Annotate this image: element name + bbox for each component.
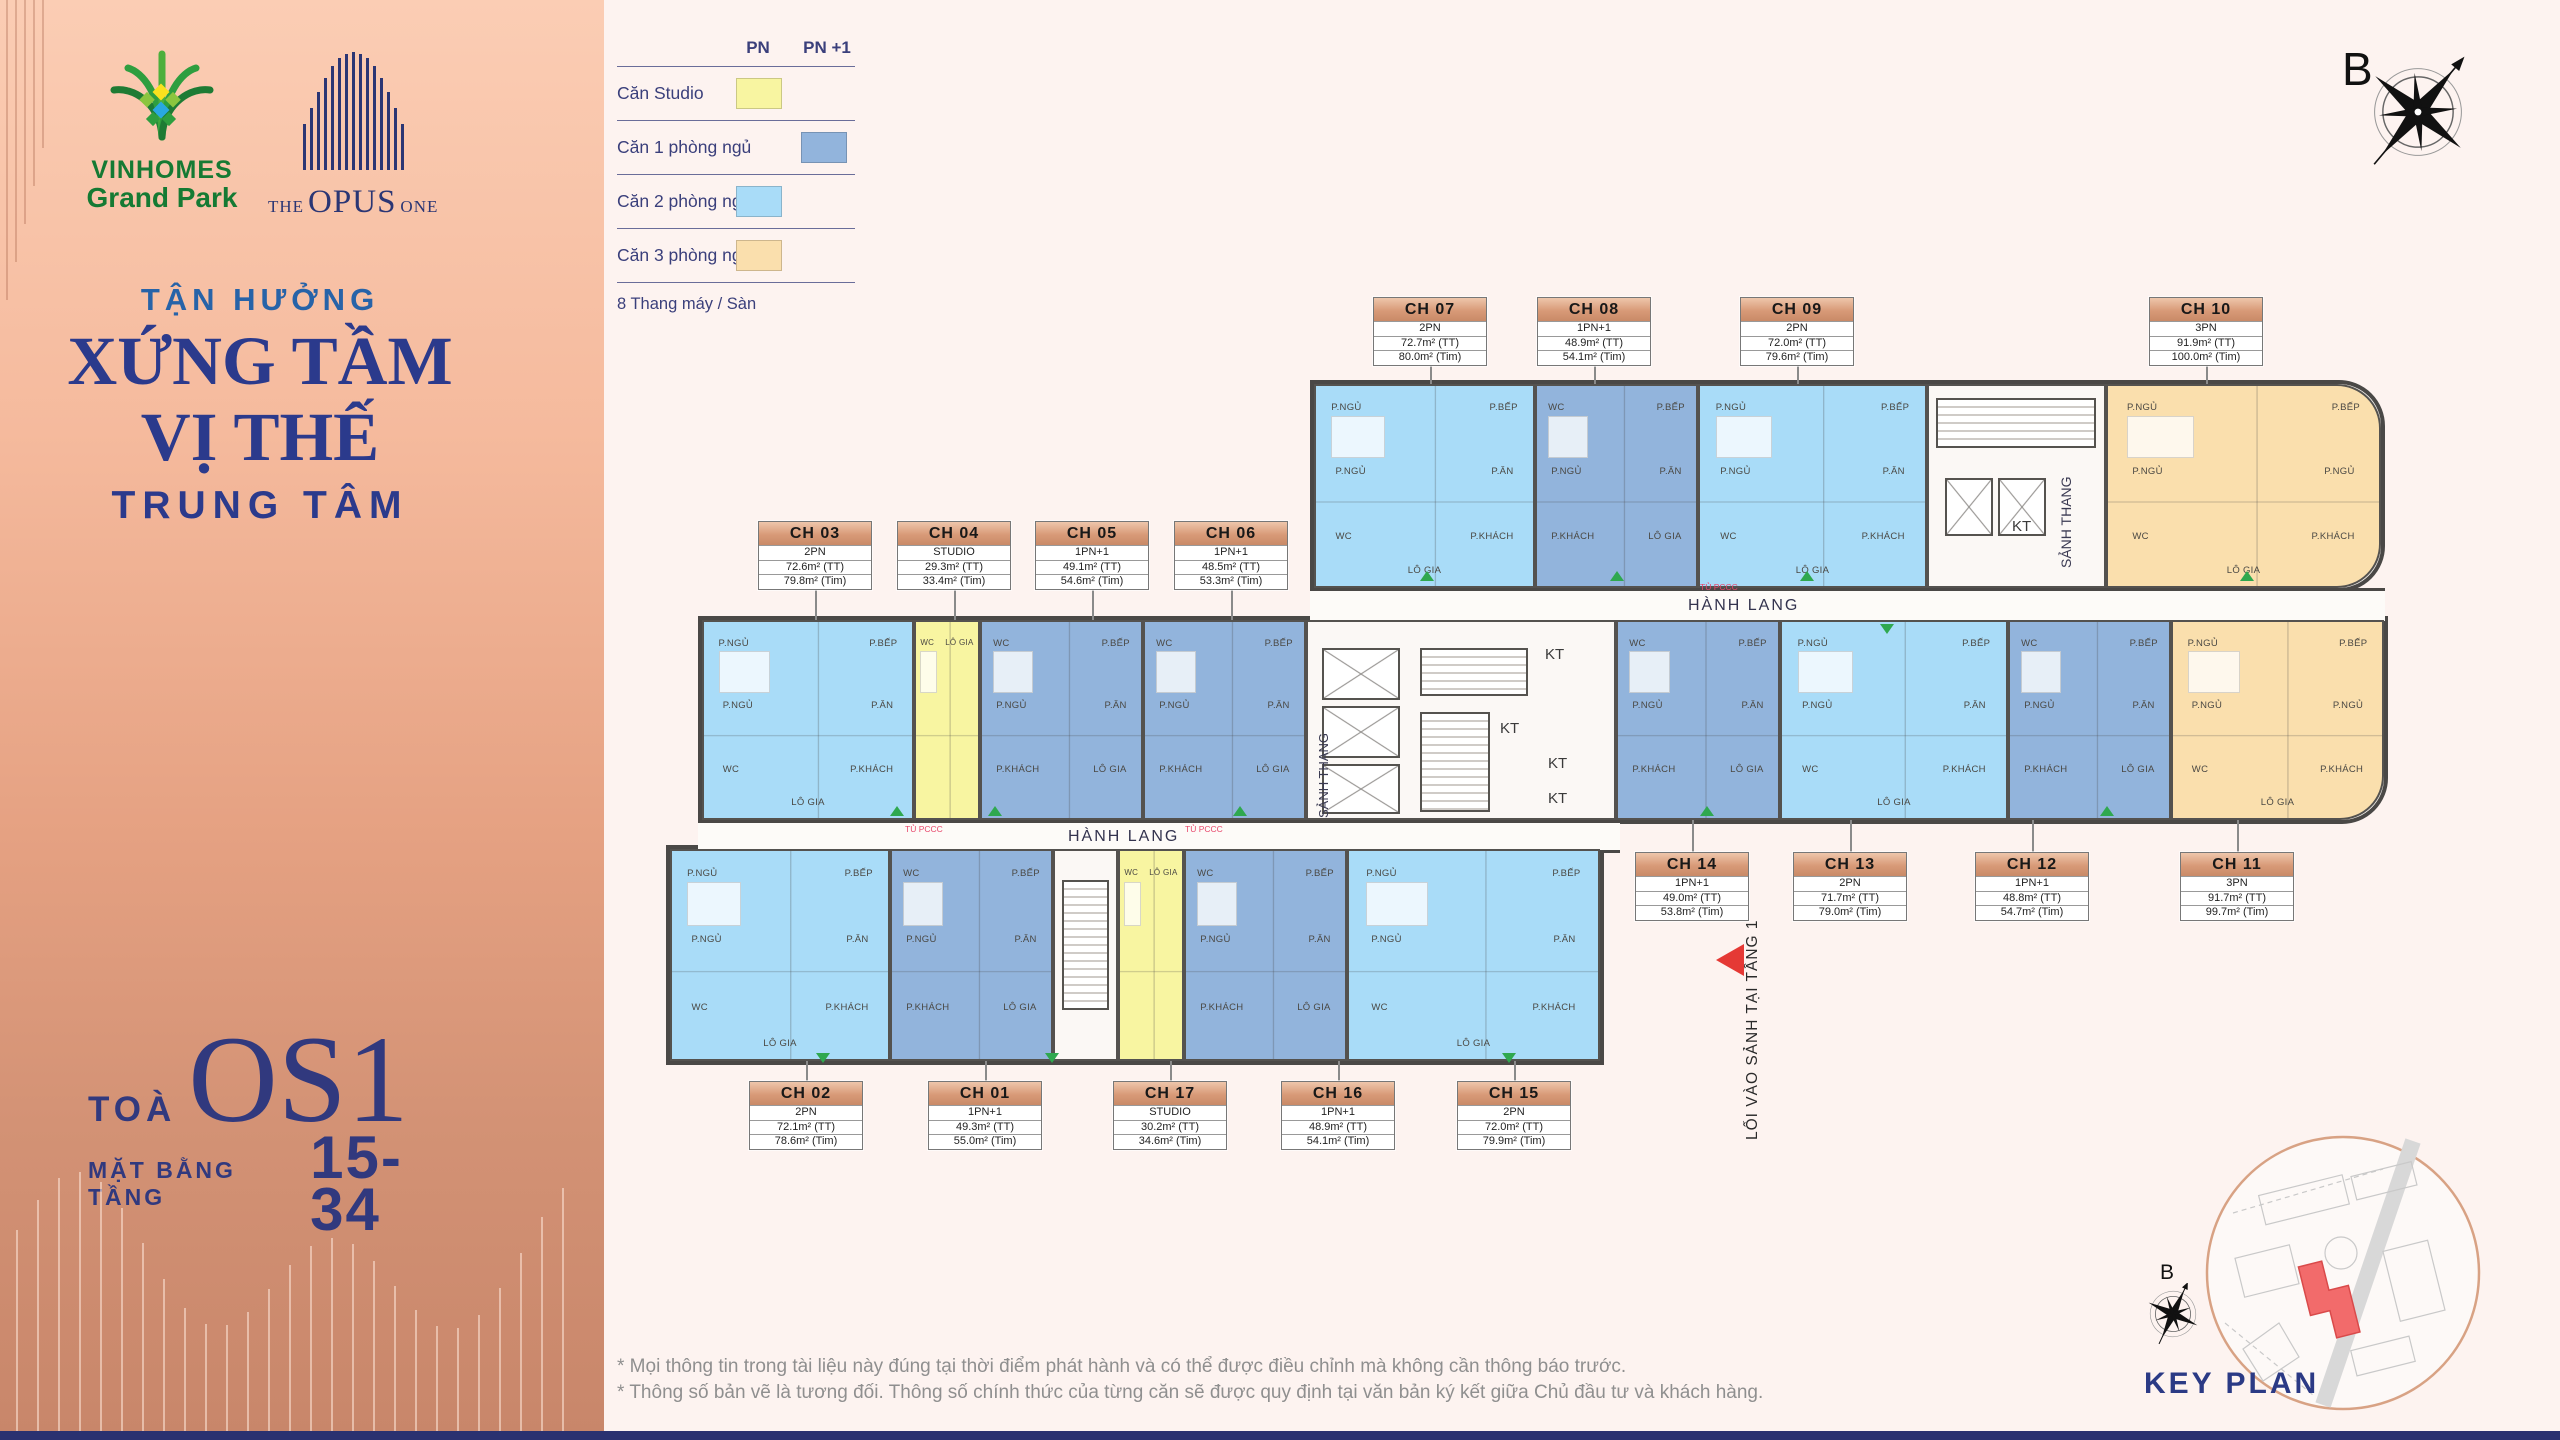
key-plan-north-letter: B <box>2160 1261 2174 1285</box>
unit-area-tim: 54.7m² (Tim) <box>1976 905 2088 920</box>
unit-callout-ch12: CH 121PN+148.8m² (TT)54.7m² (Tim) <box>1975 852 2089 921</box>
unit-type: 1PN+1 <box>1036 545 1148 560</box>
room-label: P.NGỦ <box>1798 638 1828 649</box>
unit-type: 1PN+1 <box>1636 876 1748 891</box>
room-label: P.NGỦ <box>1200 934 1230 945</box>
room-label: P.NGỦ <box>1720 466 1750 477</box>
unit-area-tt: 72.7m² (TT) <box>1374 336 1486 351</box>
unit-ch07: P.NGỦP.BẾPP.NGỦP.ĂNWCP.KHÁCHLÔ GIA <box>1314 384 1535 588</box>
room-label: LÔ GIA <box>1149 868 1177 877</box>
unit-number: CH 15 <box>1458 1082 1570 1105</box>
unit-area-tim: 34.6m² (Tim) <box>1114 1134 1226 1149</box>
room-label: P.BẾP <box>1739 638 1767 649</box>
corridor-top-label: HÀNH LANG <box>1688 597 1799 615</box>
unit-leader-line <box>2237 820 2239 852</box>
vent-triangle-icon <box>1800 571 1814 581</box>
room-label: WC <box>1156 638 1172 649</box>
unit-area-tt: 72.1m² (TT) <box>750 1120 862 1135</box>
staircase-icon <box>1062 880 1109 1010</box>
vent-triangle-icon <box>1700 806 1714 816</box>
unit-number: CH 12 <box>1976 853 2088 876</box>
corridor-top <box>1310 588 2385 624</box>
unit-type: 1PN+1 <box>1538 321 1650 336</box>
kt-label: KT <box>1548 755 1567 772</box>
unit-area-tt: 48.9m² (TT) <box>1282 1120 1394 1135</box>
unit-type: STUDIO <box>1114 1105 1226 1120</box>
room-label: WC <box>1629 638 1645 649</box>
staircase-icon <box>1936 398 2096 448</box>
room-label: WC <box>723 764 739 775</box>
room-label: P.KHÁCH <box>1200 1002 1243 1013</box>
room-label: P.NGỦ <box>1159 700 1189 711</box>
room-label: P.NGỦ <box>1366 868 1396 879</box>
unit-number: CH 13 <box>1794 853 1906 876</box>
room-label: LÔ GIA <box>2121 764 2154 775</box>
room-label: P.BẾP <box>1962 638 1990 649</box>
room-label: WC <box>2021 638 2037 649</box>
unit-ch14: WCP.BẾPP.NGỦP.ĂNP.KHÁCHLÔ GIA <box>1616 620 1780 820</box>
unit-ch09: P.NGỦP.BẾPP.NGỦP.ĂNWCP.KHÁCHLÔ GIA <box>1698 384 1927 588</box>
unit-leader-line <box>1231 586 1233 620</box>
unit-callout-ch07: CH 072PN72.7m² (TT)80.0m² (Tim) <box>1373 297 1487 366</box>
vent-triangle-icon <box>988 806 1002 816</box>
room-label: WC <box>1371 1002 1387 1013</box>
disclaimer-line2: * Thông số bản vẽ là tương đối. Thông số… <box>617 1380 1763 1406</box>
unit-callout-ch06: CH 061PN+148.5m² (TT)53.3m² (Tim) <box>1174 521 1288 590</box>
unit-area-tim: 79.8m² (Tim) <box>759 574 871 589</box>
unit-ch12: WCP.BẾPP.NGỦP.ĂNP.KHÁCHLÔ GIA <box>2008 620 2171 820</box>
unit-type: 1PN+1 <box>929 1105 1041 1120</box>
room-label: WC <box>1124 868 1138 877</box>
room-label: WC <box>1720 531 1736 542</box>
unit-area-tim: 54.6m² (Tim) <box>1036 574 1148 589</box>
unit-callout-ch16: CH 161PN+148.9m² (TT)54.1m² (Tim) <box>1281 1081 1395 1150</box>
room-label: P.KHÁCH <box>1862 531 1905 542</box>
room-label: P.NGỦ <box>2024 700 2054 711</box>
vent-triangle-icon <box>1502 1053 1516 1063</box>
unit-area-tim: 100.0m² (Tim) <box>2150 350 2262 365</box>
room-label: P.ĂN <box>1964 700 1986 711</box>
unit-type: 2PN <box>759 545 871 560</box>
unit-area-tt: 49.1m² (TT) <box>1036 560 1148 575</box>
room-label: P.NGỦ <box>1802 700 1832 711</box>
unit-number: CH 09 <box>1741 298 1853 321</box>
lobby-label-2: SẢNH THANG <box>1316 700 1331 818</box>
room-label: WC <box>2192 764 2208 775</box>
room-label: P.NGỦ <box>1331 402 1361 413</box>
room-label: P.NGỦ <box>719 638 749 649</box>
unit-callout-ch05: CH 051PN+149.1m² (TT)54.6m² (Tim) <box>1035 521 1149 590</box>
room-label: P.BẾP <box>1490 402 1518 413</box>
unit-callout-ch03: CH 032PN72.6m² (TT)79.8m² (Tim) <box>758 521 872 590</box>
unit-leader-line <box>815 586 817 620</box>
room-label: P.NGỦ <box>2192 700 2222 711</box>
room-label: P.BẾP <box>2339 638 2367 649</box>
unit-area-tim: 33.4m² (Tim) <box>898 574 1010 589</box>
room-label: P.ĂN <box>1105 700 1127 711</box>
unit-area-tt: 72.0m² (TT) <box>1741 336 1853 351</box>
unit-callout-ch02: CH 022PN72.1m² (TT)78.6m² (Tim) <box>749 1081 863 1150</box>
room-label: P.NGỦ <box>1336 466 1366 477</box>
unit-number: CH 02 <box>750 1082 862 1105</box>
unit-area-tt: 91.7m² (TT) <box>2181 891 2293 906</box>
room-label: P.KHÁCH <box>1943 764 1986 775</box>
room-label: LÔ GIA <box>1648 531 1681 542</box>
room-label: P.NGỦ <box>1632 700 1662 711</box>
room-label: WC <box>993 638 1009 649</box>
unit-type: 3PN <box>2150 321 2262 336</box>
room-label: P.ĂN <box>846 934 868 945</box>
unit-area-tim: 54.1m² (Tim) <box>1282 1134 1394 1149</box>
room-label: LÔ GIA <box>1457 1038 1490 1049</box>
unit-type: 1PN+1 <box>1282 1105 1394 1120</box>
unit-number: CH 03 <box>759 522 871 545</box>
unit-type: 2PN <box>1374 321 1486 336</box>
disclaimer-line1: * Mọi thông tin trong tài liệu này đúng … <box>617 1354 1763 1380</box>
room-label: P.NGỦ <box>2324 466 2354 477</box>
unit-leader-line <box>2032 820 2034 852</box>
unit-type: 1PN+1 <box>1175 545 1287 560</box>
elevator-icon <box>1945 478 1993 536</box>
unit-area-tt: 72.0m² (TT) <box>1458 1120 1570 1135</box>
room-label: P.BẾP <box>2332 402 2360 413</box>
room-label: P.ĂN <box>1015 934 1037 945</box>
room-label: P.ĂN <box>1660 466 1682 477</box>
unit-leader-line <box>1850 820 1852 852</box>
vent-triangle-icon <box>2240 571 2254 581</box>
room-label: P.KHÁCH <box>1532 1002 1575 1013</box>
room-label: P.KHÁCH <box>825 1002 868 1013</box>
room-label: WC <box>1197 868 1213 879</box>
room-label: P.BẾP <box>1881 402 1909 413</box>
room-label: P.BẾP <box>1657 402 1685 413</box>
vent-triangle-icon <box>1610 571 1624 581</box>
room-label: P.BẾP <box>1552 868 1580 879</box>
room-label: WC <box>1336 531 1352 542</box>
unit-area-tt: 48.9m² (TT) <box>1538 336 1650 351</box>
room-label: P.BẾP <box>1306 868 1334 879</box>
unit-leader-line <box>1170 1061 1172 1081</box>
room-label: WC <box>2132 531 2148 542</box>
unit-type: 2PN <box>750 1105 862 1120</box>
unit-leader-line <box>954 586 956 620</box>
room-label: P.KHÁCH <box>1551 531 1594 542</box>
room-label: P.BẾP <box>1102 638 1130 649</box>
unit-number: CH 17 <box>1114 1082 1226 1105</box>
room-label: LÔ GIA <box>791 797 824 808</box>
room-label: P.BẾP <box>869 638 897 649</box>
unit-type: 2PN <box>1458 1105 1570 1120</box>
room-label: WC <box>920 638 934 647</box>
unit-area-tt: 91.9m² (TT) <box>2150 336 2262 351</box>
unit-area-tim: 99.7m² (Tim) <box>2181 905 2293 920</box>
room-label: P.ĂN <box>2133 700 2155 711</box>
unit-area-tim: 79.0m² (Tim) <box>1794 905 1906 920</box>
unit-callout-ch13: CH 132PN71.7m² (TT)79.0m² (Tim) <box>1793 852 1907 921</box>
unit-leader-line <box>1514 1061 1516 1081</box>
unit-ch11: P.NGỦP.BẾPP.NGỦP.NGỦWCP.KHÁCHLÔ GIA <box>2171 620 2384 820</box>
room-label: WC <box>1548 402 1564 413</box>
staircase-icon <box>1420 648 1528 696</box>
key-plan-title: KEY PLAN <box>2144 1367 2319 1401</box>
vent-triangle-icon <box>1420 571 1434 581</box>
unit-area-tt: 49.3m² (TT) <box>929 1120 1041 1135</box>
unit-callout-ch10: CH 103PN91.9m² (TT)100.0m² (Tim) <box>2149 297 2263 366</box>
unit-callout-ch11: CH 113PN91.7m² (TT)99.7m² (Tim) <box>2180 852 2294 921</box>
elevator-icon <box>1322 648 1400 700</box>
room-label: P.NGỦ <box>687 868 717 879</box>
room-label: P.NGỦ <box>691 934 721 945</box>
vent-triangle-icon <box>1233 806 1247 816</box>
room-label: WC <box>691 1002 707 1013</box>
room-label: P.ĂN <box>871 700 893 711</box>
room-label: P.NGỦ <box>2127 402 2157 413</box>
elevator-icon <box>1322 764 1400 814</box>
room-label: LÔ GIA <box>1093 764 1126 775</box>
elevator-icon <box>1322 706 1400 758</box>
unit-leader-line <box>1092 586 1094 620</box>
unit-type: 2PN <box>1741 321 1853 336</box>
unit-callout-ch15: CH 152PN72.0m² (TT)79.9m² (Tim) <box>1457 1081 1571 1150</box>
fire-cabinet-label: TỦ PCCC <box>905 824 943 834</box>
unit-area-tim: 53.8m² (Tim) <box>1636 905 1748 920</box>
unit-callout-ch17: CH 17STUDIO30.2m² (TT)34.6m² (Tim) <box>1113 1081 1227 1150</box>
unit-type: 1PN+1 <box>1976 876 2088 891</box>
room-label: LÔ GIA <box>1256 764 1289 775</box>
unit-area-tt: 30.2m² (TT) <box>1114 1120 1226 1135</box>
vent-triangle-icon <box>816 1053 830 1063</box>
unit-ch16: WCP.BẾPP.NGỦP.ĂNP.KHÁCHLÔ GIA <box>1184 849 1347 1061</box>
room-label: LÔ GIA <box>1730 764 1763 775</box>
room-label: P.ĂN <box>1309 934 1331 945</box>
lobby-label: SẢNH THANG <box>2058 448 2074 568</box>
room-label: P.ĂN <box>1491 466 1513 477</box>
unit-leader-line <box>806 1061 808 1081</box>
unit-area-tt: 72.6m² (TT) <box>759 560 871 575</box>
unit-area-tt: 48.5m² (TT) <box>1175 560 1287 575</box>
vent-triangle-icon <box>1880 624 1894 634</box>
unit-area-tim: 54.1m² (Tim) <box>1538 350 1650 365</box>
kt-label: KT <box>1548 790 1567 807</box>
unit-number: CH 16 <box>1282 1082 1394 1105</box>
unit-type: 2PN <box>1794 876 1906 891</box>
unit-area-tt: 49.0m² (TT) <box>1636 891 1748 906</box>
unit-number: CH 06 <box>1175 522 1287 545</box>
room-label: P.KHÁCH <box>2312 531 2355 542</box>
room-label: LÔ GIA <box>1003 1002 1036 1013</box>
unit-callout-ch09: CH 092PN72.0m² (TT)79.6m² (Tim) <box>1740 297 1854 366</box>
room-label: P.KHÁCH <box>1159 764 1202 775</box>
key-plan: B KEY PLAN <box>2128 1095 2528 1425</box>
unit-number: CH 11 <box>2181 853 2293 876</box>
entrance-arrow-icon <box>1716 944 1744 976</box>
room-label: P.ĂN <box>1268 700 1290 711</box>
room-label: P.BẾP <box>845 868 873 879</box>
unit-ch10: P.NGỦP.BẾPP.NGỦP.NGỦWCP.KHÁCHLÔ GIA <box>2106 384 2381 588</box>
unit-leader-line <box>1338 1061 1340 1081</box>
unit-type: STUDIO <box>898 545 1010 560</box>
unit-number: CH 04 <box>898 522 1010 545</box>
unit-ch04: WCLÔ GIA <box>914 620 980 820</box>
unit-callout-ch14: CH 141PN+149.0m² (TT)53.8m² (Tim) <box>1635 852 1749 921</box>
room-label: P.KHÁCH <box>2024 764 2067 775</box>
room-label: P.KHÁCH <box>1470 531 1513 542</box>
unit-area-tim: 79.6m² (Tim) <box>1741 350 1853 365</box>
room-label: P.BẾP <box>2130 638 2158 649</box>
unit-callout-ch08: CH 081PN+148.9m² (TT)54.1m² (Tim) <box>1537 297 1651 366</box>
compass-rose-icon: B <box>2338 40 2488 190</box>
kt-label: KT <box>1545 646 1564 663</box>
kt-label: KT <box>2012 518 2031 535</box>
vent-triangle-icon <box>2100 806 2114 816</box>
unit-area-tt: 29.3m² (TT) <box>898 560 1010 575</box>
unit-ch17: WCLÔ GIA <box>1118 849 1184 1061</box>
room-label: P.ĂN <box>1741 700 1763 711</box>
unit-area-tim: 53.3m² (Tim) <box>1175 574 1287 589</box>
unit-type: 3PN <box>2181 876 2293 891</box>
room-label: P.NGỦ <box>996 700 1026 711</box>
unit-number: CH 05 <box>1036 522 1148 545</box>
unit-ch15: P.NGỦP.BẾPP.NGỦP.ĂNWCP.KHÁCHLÔ GIA <box>1347 849 1600 1061</box>
disclaimer: * Mọi thông tin trong tài liệu này đúng … <box>617 1354 1763 1406</box>
room-label: P.KHÁCH <box>906 1002 949 1013</box>
room-label: LÔ GIA <box>763 1038 796 1049</box>
fire-cabinet-label: TỦ PCCC <box>1185 824 1223 834</box>
unit-number: CH 01 <box>929 1082 1041 1105</box>
unit-ch13: P.NGỦP.BẾPP.NGỦP.ĂNWCP.KHÁCHLÔ GIA <box>1780 620 2008 820</box>
unit-area-tim: 78.6m² (Tim) <box>750 1134 862 1149</box>
unit-number: CH 08 <box>1538 298 1650 321</box>
unit-area-tt: 48.8m² (TT) <box>1976 891 2088 906</box>
unit-number: CH 14 <box>1636 853 1748 876</box>
room-label: LÔ GIA <box>1297 1002 1330 1013</box>
room-label: LÔ GIA <box>2261 797 2294 808</box>
room-label: P.BẾP <box>1265 638 1293 649</box>
bottom-accent-bar <box>0 1431 2560 1440</box>
unit-leader-line <box>1692 820 1694 852</box>
room-label: P.NGỦ <box>1551 466 1581 477</box>
room-label: P.NGỦ <box>2188 638 2218 649</box>
room-label: P.KHÁCH <box>1632 764 1675 775</box>
unit-ch08: WCP.BẾPP.NGỦP.ĂNP.KHÁCHLÔ GIA <box>1535 384 1698 588</box>
room-label: LÔ GIA <box>945 638 973 647</box>
unit-ch01: WCP.BẾPP.NGỦP.ĂNP.KHÁCHLÔ GIA <box>890 849 1053 1061</box>
unit-area-tim: 79.9m² (Tim) <box>1458 1134 1570 1149</box>
room-label: P.NGỦ <box>2132 466 2162 477</box>
room-label: LÔ GIA <box>1877 797 1910 808</box>
room-label: P.NGỦ <box>1371 934 1401 945</box>
unit-area-tim: 55.0m² (Tim) <box>929 1134 1041 1149</box>
key-plan-compass-icon: B <box>2142 1283 2212 1353</box>
fire-cabinet-label: TỦ PCCC <box>1700 582 1738 592</box>
room-label: P.KHÁCH <box>2320 764 2363 775</box>
unit-area-tt: 71.7m² (TT) <box>1794 891 1906 906</box>
room-label: P.ĂN <box>1883 466 1905 477</box>
unit-ch02: P.NGỦP.BẾPP.NGỦP.ĂNWCP.KHÁCHLÔ GIA <box>670 849 890 1061</box>
kt-label: KT <box>1500 720 1519 737</box>
unit-ch05: WCP.BẾPP.NGỦP.ĂNP.KHÁCHLÔ GIA <box>980 620 1143 820</box>
room-label: P.ĂN <box>1553 934 1575 945</box>
room-label: WC <box>1802 764 1818 775</box>
unit-number: CH 10 <box>2150 298 2262 321</box>
unit-callout-ch01: CH 011PN+149.3m² (TT)55.0m² (Tim) <box>928 1081 1042 1150</box>
vent-triangle-icon <box>890 806 904 816</box>
room-label: P.NGỦ <box>906 934 936 945</box>
room-label: P.KHÁCH <box>996 764 1039 775</box>
unit-ch03: P.NGỦP.BẾPP.NGỦP.ĂNWCP.KHÁCHLÔ GIA <box>702 620 914 820</box>
vent-triangle-icon <box>1045 1053 1059 1063</box>
unit-ch06: WCP.BẾPP.NGỦP.ĂNP.KHÁCHLÔ GIA <box>1143 620 1306 820</box>
corridor-bottom-label: HÀNH LANG <box>1068 828 1179 846</box>
unit-callout-ch04: CH 04STUDIO29.3m² (TT)33.4m² (Tim) <box>897 521 1011 590</box>
unit-area-tim: 80.0m² (Tim) <box>1374 350 1486 365</box>
room-label: P.NGỦ <box>1716 402 1746 413</box>
unit-number: CH 07 <box>1374 298 1486 321</box>
room-label: P.KHÁCH <box>850 764 893 775</box>
staircase-icon <box>1420 712 1490 812</box>
room-label: P.NGỦ <box>2333 700 2363 711</box>
room-label: P.NGỦ <box>723 700 753 711</box>
unit-leader-line <box>985 1061 987 1081</box>
room-label: P.BẾP <box>1012 868 1040 879</box>
room-label: WC <box>903 868 919 879</box>
